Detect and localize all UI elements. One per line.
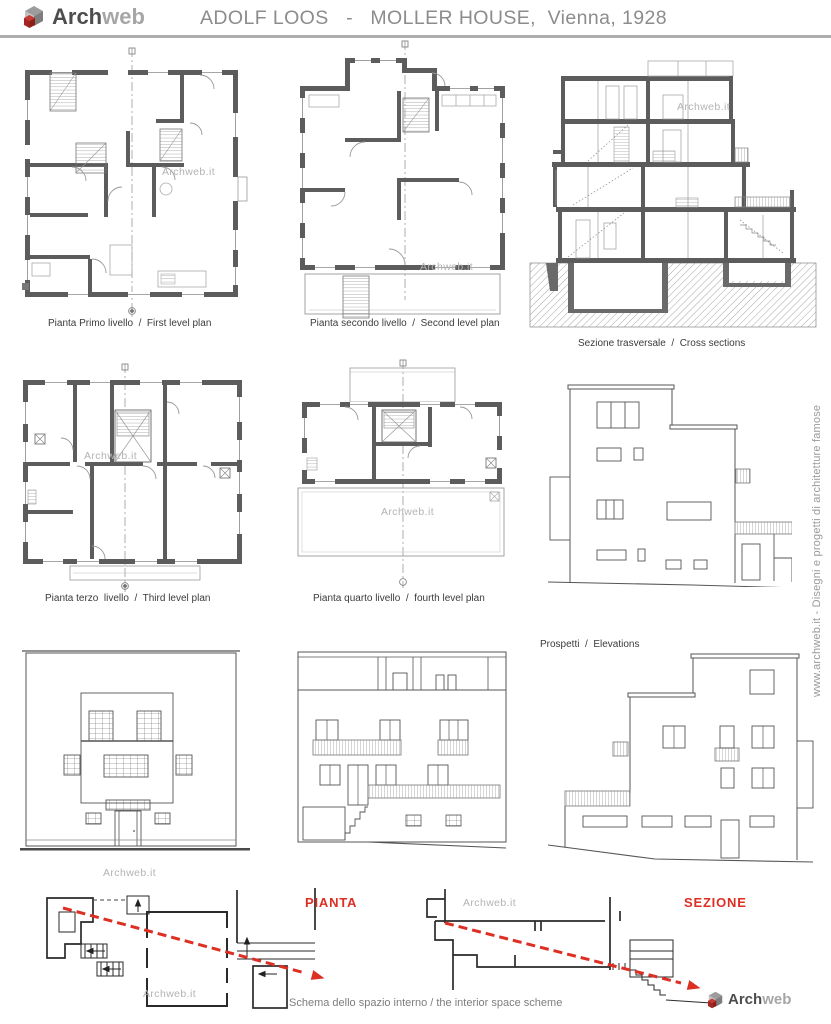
elevation-front-drawing: [18, 643, 253, 883]
watermark-plan3: Archweb.it: [84, 450, 137, 462]
caption-fourth-level-plan: Pianta quarto livello / fourth level pla…: [313, 593, 485, 604]
logo-arch: Arch: [52, 4, 102, 29]
logo-text: Archweb: [52, 4, 145, 30]
archweb-cube-icon: [24, 5, 44, 29]
plan-fourth-level-drawing: [290, 358, 515, 598]
page-title: ADOLF LOOS - MOLLER HOUSE, Vienna, 1928: [200, 7, 667, 30]
caption-first-level-plan: Pianta Primo livello / First level plan: [48, 318, 211, 329]
caption-interior-space-scheme: Schema dello spazio interno / the interi…: [289, 997, 562, 1009]
caption-elevations: Prospetti / Elevations: [540, 639, 640, 650]
schema-plan-label: PIANTA: [305, 895, 357, 910]
watermark-section: Archweb.it: [677, 101, 730, 113]
cross-section-drawing: [528, 55, 818, 338]
footer-archweb-logo: Archweb: [708, 991, 791, 1009]
watermark-plan4: Archweb.it: [381, 506, 434, 518]
site-vertical-text: www.archweb.it - Disegni e progetti di a…: [811, 345, 823, 697]
plan-third-level-drawing: [15, 362, 250, 602]
footer-archweb-cube-icon: [708, 991, 723, 1009]
elevation-side-left-drawing: [545, 648, 820, 893]
archweb-logo: Archweb: [24, 4, 145, 30]
watermark-schema-section: Archweb.it: [463, 897, 516, 909]
caption-cross-section: Sezione trasversale / Cross sections: [578, 338, 745, 349]
caption-second-level-plan: Pianta secondo livello / Second level pl…: [310, 318, 500, 329]
footer-logo-web: web: [762, 991, 791, 1008]
watermark-elevation-front: Archweb.it: [103, 867, 156, 879]
watermark-schema-plan: Archweb.it: [143, 988, 196, 1000]
plan-first-level-drawing: [10, 45, 250, 325]
elevation-rear-drawing: [288, 640, 518, 880]
schema-section-label: SEZIONE: [684, 895, 747, 910]
caption-third-level-plan: Pianta terzo livello / Third level plan: [45, 593, 210, 604]
footer-logo-text: Archweb: [728, 991, 791, 1009]
drawing-sheet: Archweb ADOLF LOOS - MOLLER HOUSE, Vienn…: [0, 0, 831, 1024]
logo-web: web: [102, 4, 145, 29]
watermark-plan1: Archweb.it: [162, 166, 215, 178]
watermark-plan2: Archweb.it: [420, 261, 473, 273]
plan-second-level-drawing: [285, 38, 520, 328]
footer-logo-arch: Arch: [728, 991, 762, 1008]
elevation-side-right-drawing: [542, 372, 792, 592]
